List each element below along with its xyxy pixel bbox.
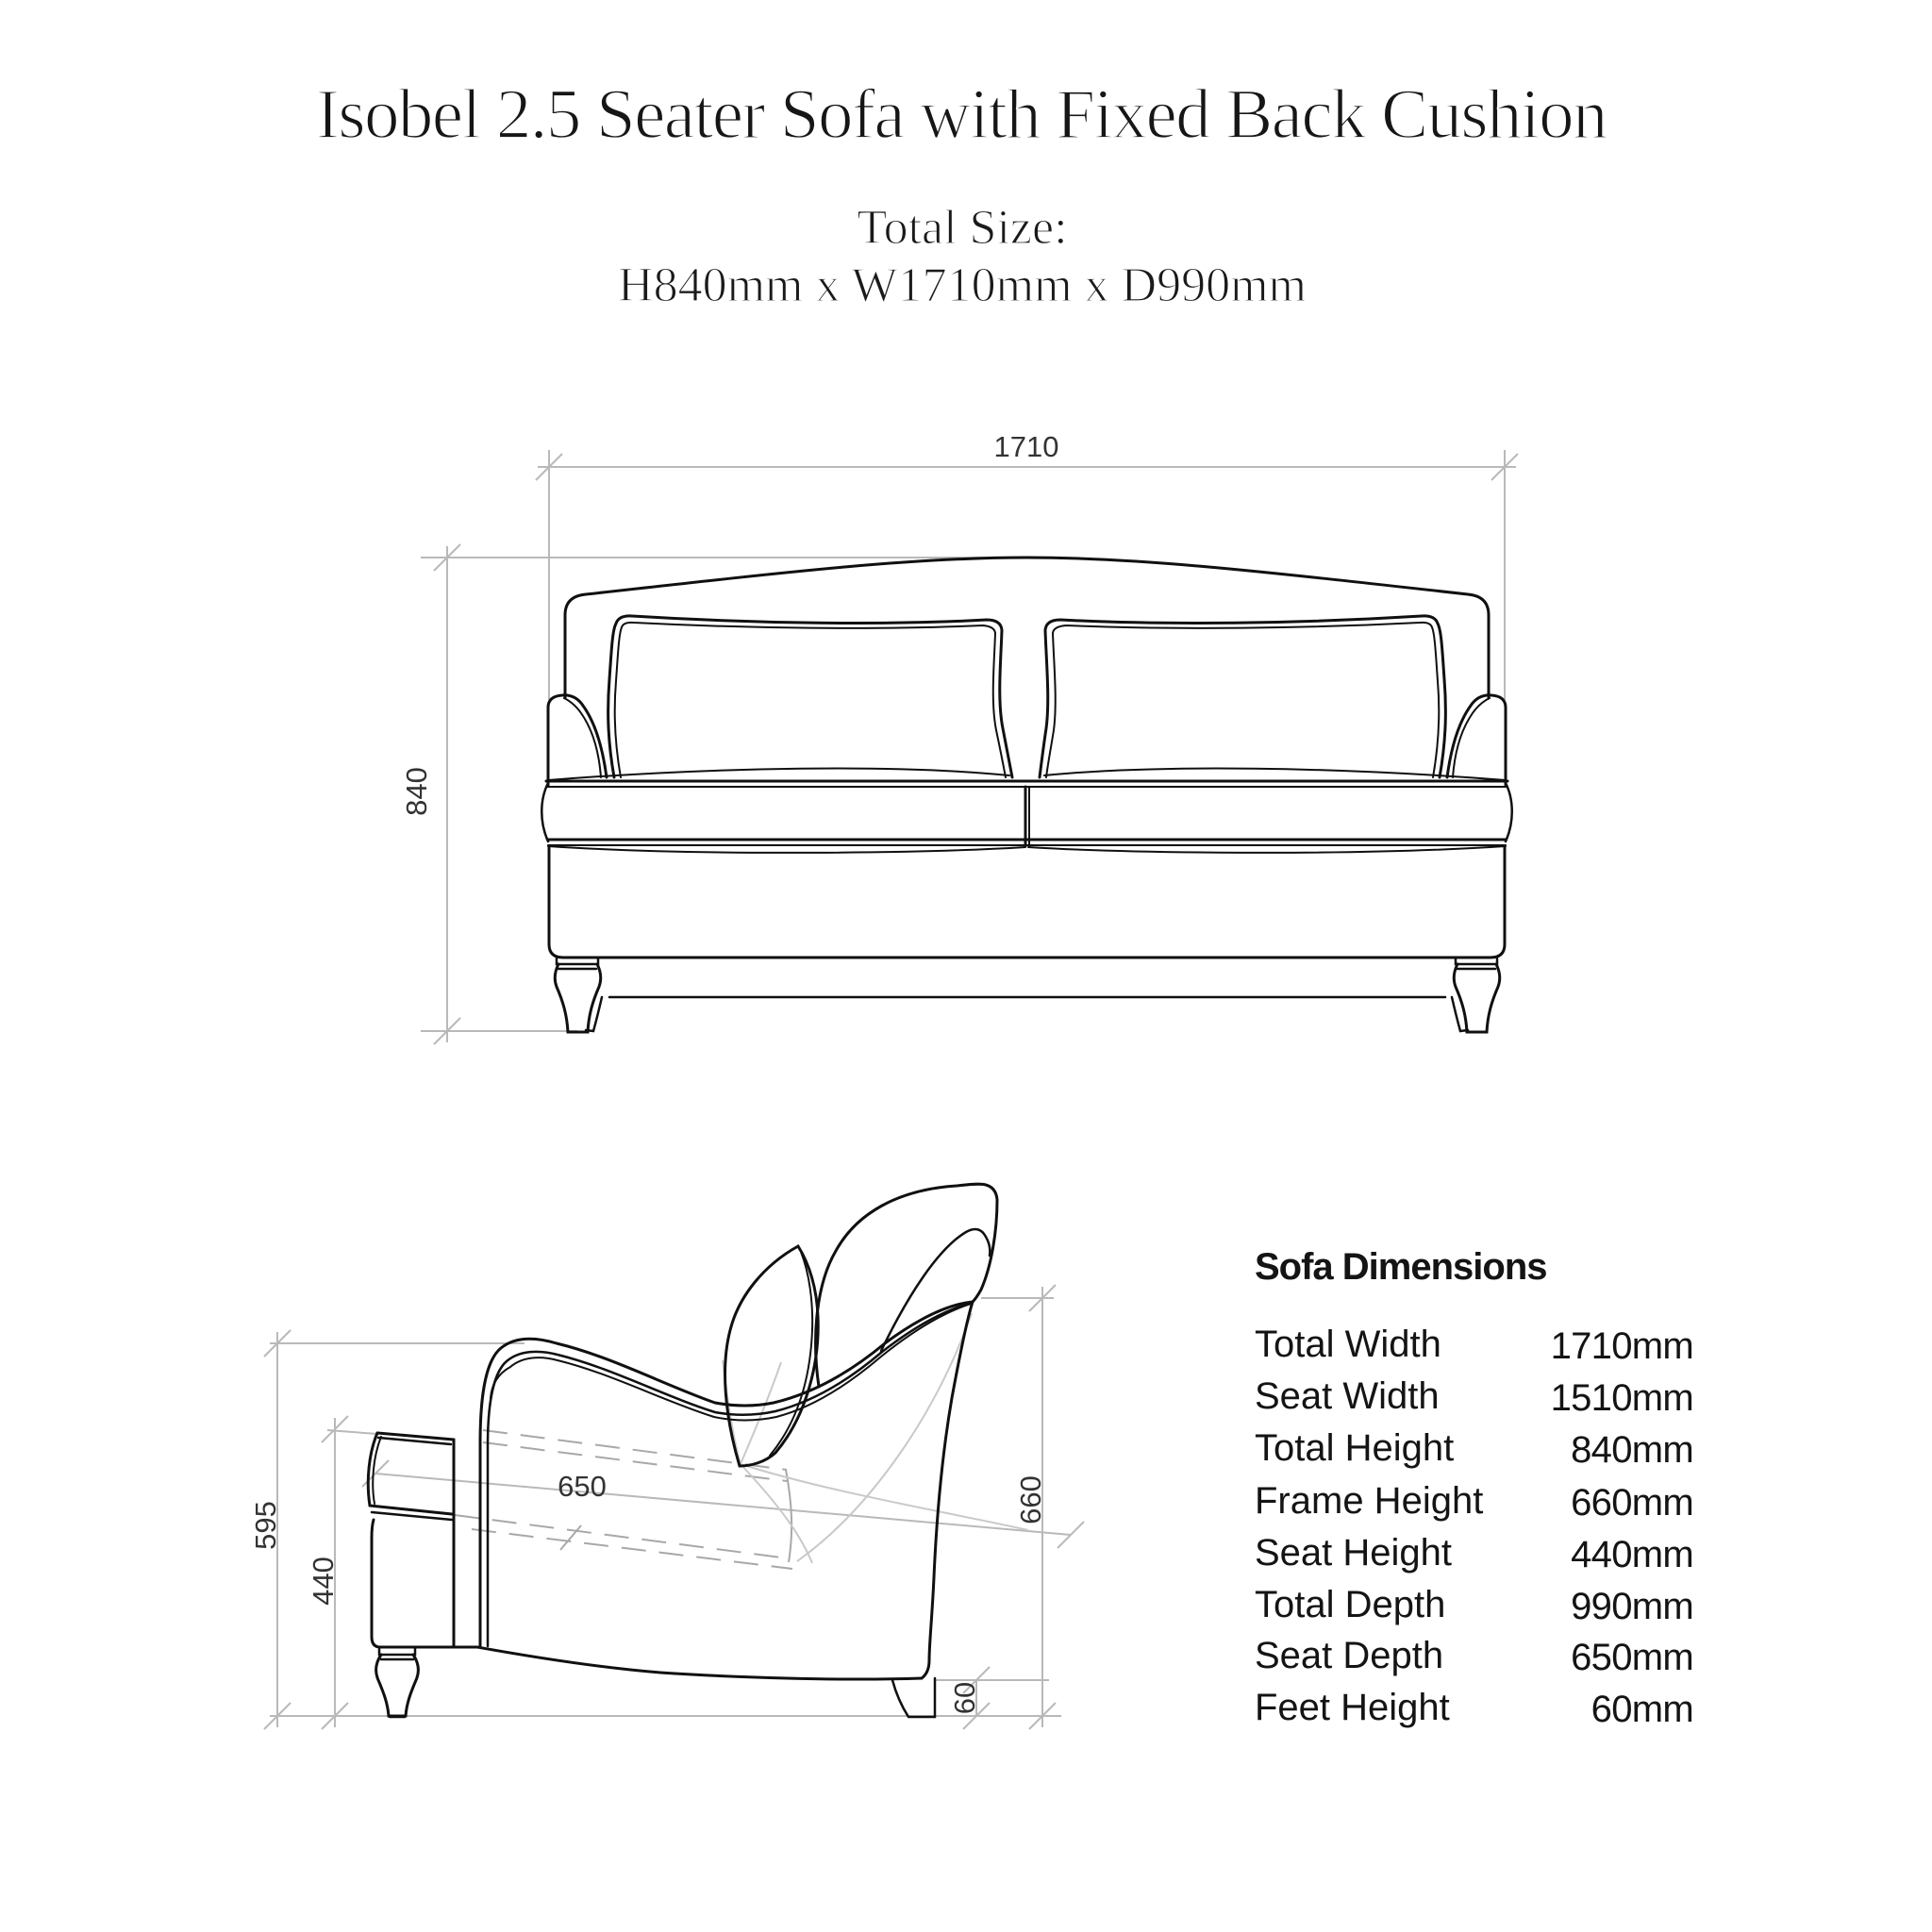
svg-text:60: 60 (948, 1682, 981, 1714)
svg-text:440: 440 (307, 1557, 340, 1606)
svg-text:650: 650 (558, 1470, 607, 1503)
svg-text:595: 595 (249, 1501, 282, 1550)
svg-text:840: 840 (400, 767, 433, 816)
svg-text:660: 660 (1014, 1475, 1047, 1524)
svg-text:1710: 1710 (994, 430, 1059, 463)
